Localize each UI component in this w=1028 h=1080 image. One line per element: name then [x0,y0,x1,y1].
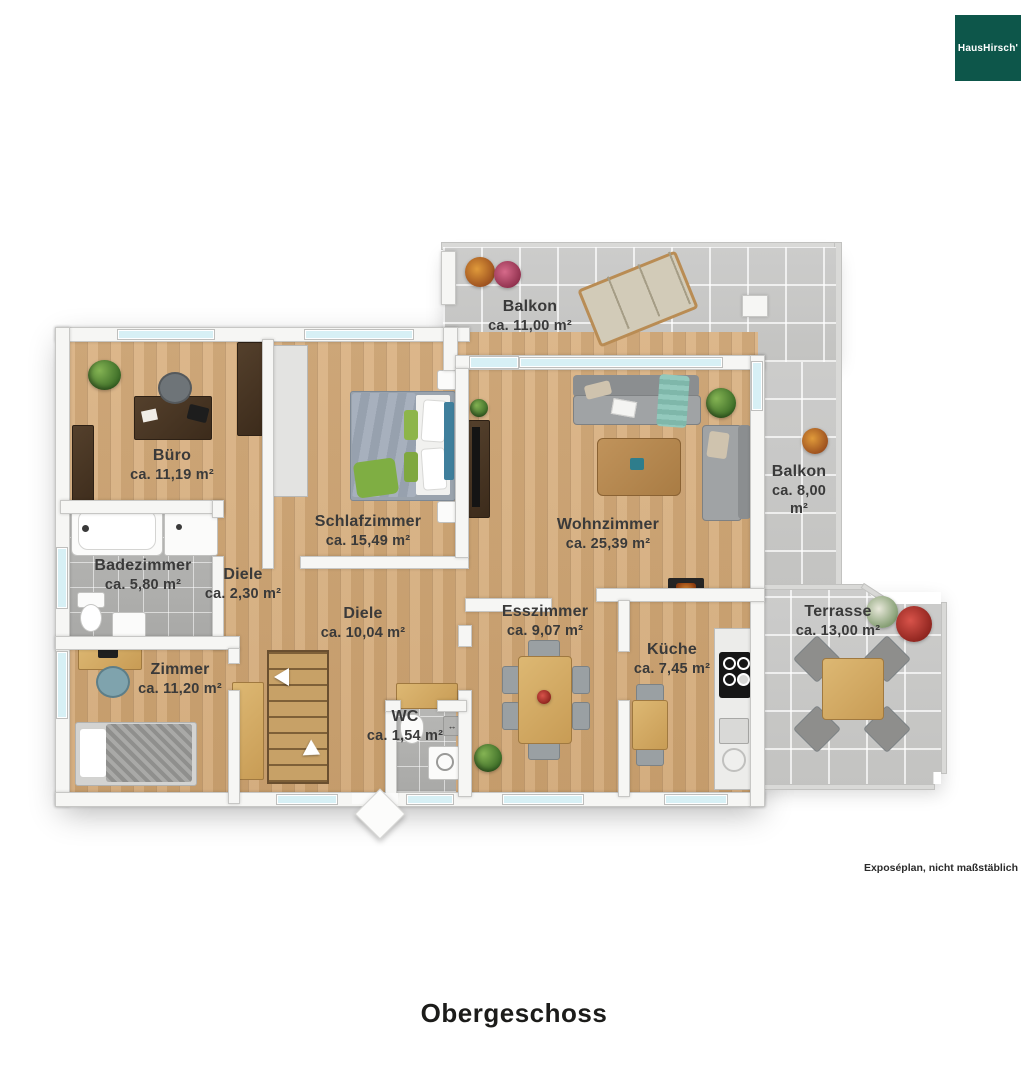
room-area: ca. 11,00 m² [455,317,605,335]
balcony-right-door-glass [752,362,762,410]
terrace-railing-top [752,584,866,590]
room-name: Balkon [455,297,605,317]
washing-machine-door [436,753,454,771]
bed-green-pillow-2 [404,452,418,482]
kitchen-chair-bottom [636,748,664,766]
plant-buero [88,360,121,390]
room-area: ca. 9,07 m² [470,622,620,640]
dining-chair-right-2 [572,702,590,730]
room-area: ca. 8,00 m² [762,482,836,518]
room-label-balkon-oben: Balkon ca. 11,00 m² [455,297,605,335]
balcony-plant-pink [494,261,521,288]
terrace-railing-bottom [752,784,935,790]
wardrobe-schlafzimmer [273,345,308,497]
room-area: ca. 11,19 m² [97,466,247,484]
room-name: Wohnzimmer [533,515,683,535]
bathtub-faucet [82,525,89,532]
room-label-zimmer: Zimmer ca. 11,20 m² [105,660,255,698]
terrace-railing-right [941,602,947,774]
wall-schlafzimmer-wohnzimmer [455,368,469,558]
disclaimer-text: Exposéplan, nicht maßstäblich [864,862,1018,874]
bed-green-pillow-1 [404,410,418,440]
window-zimmer [57,652,67,718]
window-kueche [665,795,727,804]
wall-outer-right [750,355,765,807]
room-label-schlafzimmer: Schlafzimmer ca. 15,49 m² [288,512,448,550]
room-area: ca. 11,20 m² [105,680,255,698]
floor-plan: ↔ [0,0,1028,900]
window-wohnzimmer-balkon [520,358,722,367]
window-esszimmer [503,795,583,804]
room-name: Schlafzimmer [288,512,448,532]
wall-bad-right-upper [212,500,224,518]
plant-esszimmer [474,744,502,772]
wall-balcony-pillar [742,295,768,317]
room-label-buero: Büro ca. 11,19 m² [97,446,247,484]
room-label-kueche: Küche ca. 7,45 m² [597,640,747,678]
table-decor [537,690,551,704]
sofa-throw [656,374,690,428]
room-label-wohnzimmer: Wohnzimmer ca. 25,39 m² [533,515,683,553]
room-name: Balkon [762,462,836,482]
room-area: ca. 7,45 m² [597,660,747,678]
wardrobe-buero [237,342,263,436]
room-name: Zimmer [105,660,255,680]
room-name: Diele [193,565,293,585]
room-label-balkon-rechts: Balkon ca. 8,00 m² [762,462,836,518]
room-area: ca. 1,54 m² [345,727,465,745]
wall-buero-bad [60,500,224,514]
wall-esszimmer-kueche-lower [618,700,630,797]
room-label-diele: Diele ca. 10,04 m² [288,604,438,642]
floor-title: Obergeschoss [0,998,1028,1029]
bathtub-inner [78,510,156,550]
wall-bad-zimmer [55,636,240,650]
room-area: ca. 25,39 m² [533,535,683,553]
room-name: Esszimmer [470,602,620,622]
office-chair [158,372,192,404]
shower-drain [176,524,182,530]
plant-tv [470,399,488,417]
wall-balcony-privacy [441,251,456,305]
room-label-esszimmer: Esszimmer ca. 9,07 m² [470,602,620,640]
dining-chair-right-1 [572,666,590,694]
chaise-pillow [706,431,729,460]
plant-wohnzimmer [706,388,736,418]
balcony-right-plant [802,428,828,454]
terrace-table [822,658,884,720]
room-label-diele-klein: Diele ca. 2,30 m² [193,565,293,603]
room-name: Büro [97,446,247,466]
window-schlafzimmer [305,330,413,339]
balcony-door-glass [470,357,518,368]
room-name: Küche [597,640,747,660]
toilet-bowl-bathroom [80,604,102,632]
coffee-table-decor [630,458,644,470]
kitchen-plates [722,748,746,772]
single-bed-duvet [106,724,192,782]
room-label-wc: WC ca. 1,54 m² [345,707,465,745]
window-diele [277,795,337,804]
room-area: ca. 13,00 m² [763,622,913,640]
wall-buero-schlafzimmer [262,339,274,569]
room-label-terrasse: Terrasse ca. 13,00 m² [763,602,913,640]
bed-green-throw [353,457,400,498]
room-area: ca. 10,04 m² [288,624,438,642]
balcony-plant-orange [465,257,495,287]
room-area: ca. 15,49 m² [288,532,448,550]
room-name: Diele [288,604,438,624]
tv-screen [472,427,480,507]
kitchen-sink [719,718,749,744]
wall-schlafzimmer-bottom [300,556,469,569]
bed-blue-runner [444,402,454,480]
floorplan-page: HausHirsch' [0,0,1028,1080]
stair-arrow-up-icon [274,668,289,686]
window-buero [118,330,214,339]
window-wc [407,795,453,804]
window-badezimmer [57,548,67,608]
room-name: WC [345,707,465,727]
kitchen-table [632,700,668,750]
room-area: ca. 2,30 m² [193,585,293,603]
single-bed-pillow [79,728,107,778]
wall-zimmer-right [228,690,240,804]
room-name: Terrasse [763,602,913,622]
dining-chair-bottom [528,742,560,760]
